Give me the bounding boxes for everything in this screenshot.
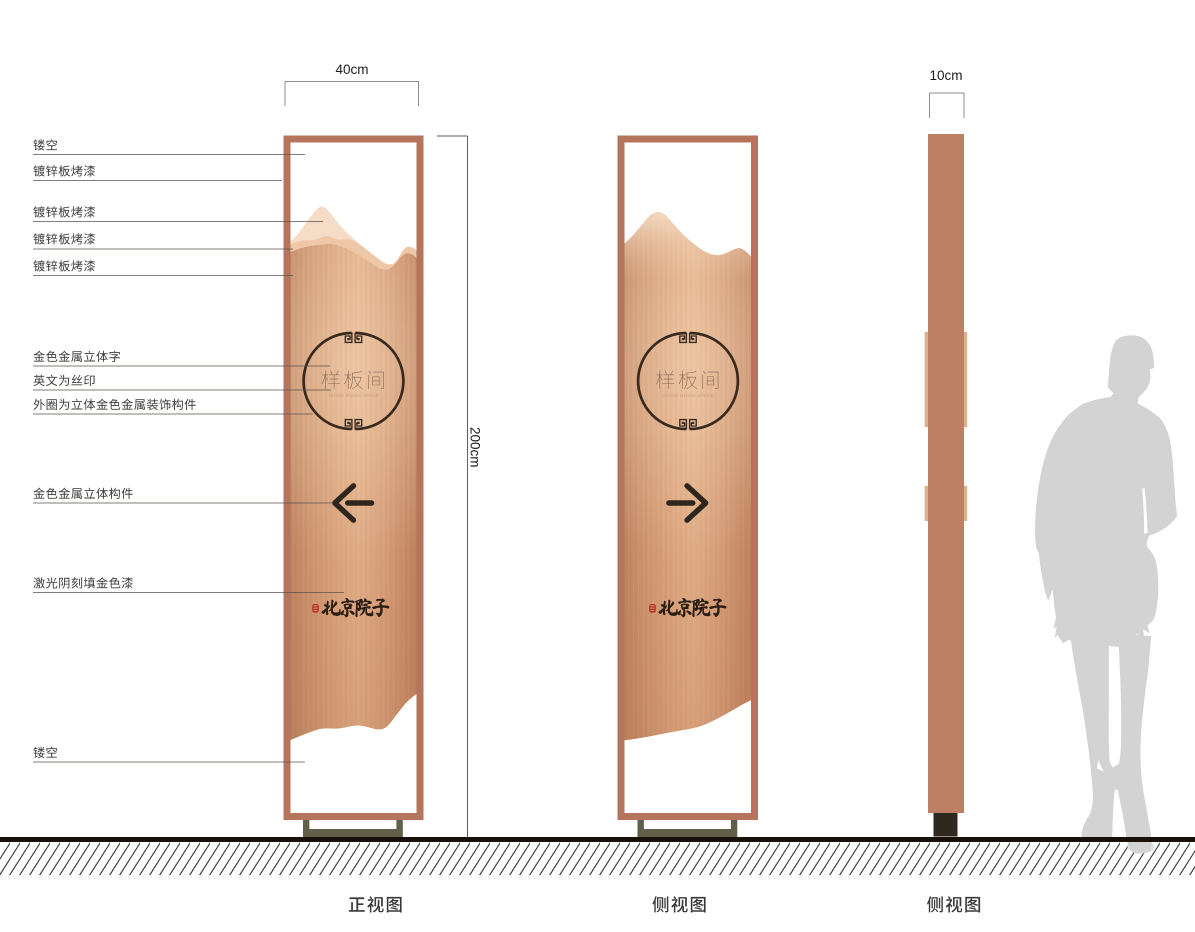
- svg-text:200cm: 200cm: [468, 427, 483, 468]
- svg-text:SHOW ROOM SPACE: SHOW ROOM SPACE: [663, 393, 714, 398]
- svg-text:10cm: 10cm: [929, 68, 962, 83]
- svg-text:SHOW ROOM SPACE: SHOW ROOM SPACE: [329, 393, 380, 398]
- svg-text:40cm: 40cm: [335, 62, 368, 77]
